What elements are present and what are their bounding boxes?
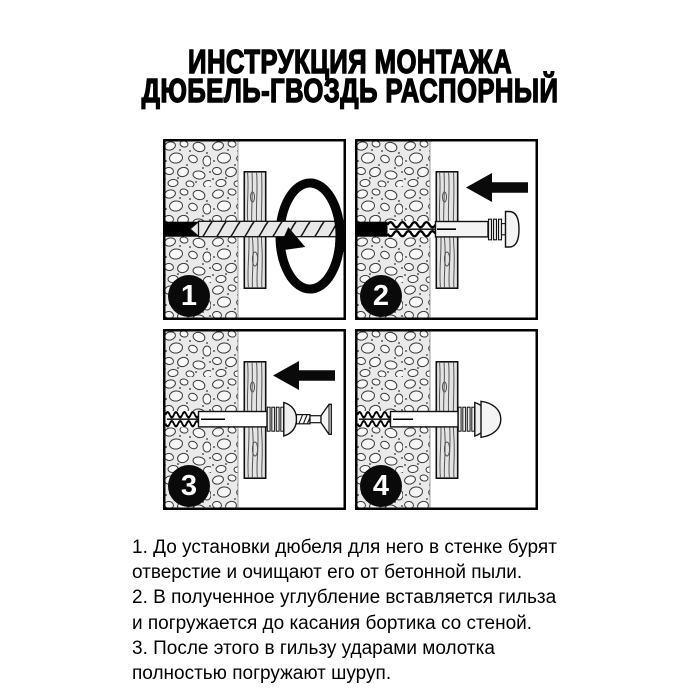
collar-rings: [489, 219, 502, 240]
step-number-badge: 2: [360, 275, 402, 317]
instruction-line: 2. В полученное углубление вставляется г…: [132, 585, 602, 610]
expansion-sleeve-ribs: [358, 411, 392, 427]
title-line-2: ДЮБЕЛЬ-ГВОЗДЬ РАСПОРНЫЙ: [77, 76, 623, 105]
instruction-line: и погружается до касания бортика со стен…: [132, 611, 602, 636]
expansion-sleeve-ribs: [388, 221, 436, 237]
page: { "title": { "line1": "ИНСТРУКЦИЯ МОНТАЖ…: [0, 0, 700, 700]
instruction-line: 3. После этого в гильзу ударами молотка: [132, 636, 602, 661]
step-panel-2: 2: [355, 139, 538, 320]
nail-head: [506, 212, 520, 248]
step-panel-4: 4: [355, 329, 538, 510]
step-panel-3: 3: [163, 329, 346, 510]
instruction-line: отверстие и очищают его от бетонной пыли…: [132, 560, 602, 585]
step-panel-1: 1: [163, 139, 346, 320]
page-title: ИНСТРУКЦИЯ МОНТАЖА ДЮБЕЛЬ-ГВОЗДЬ РАСПОРН…: [77, 47, 623, 105]
instruction-text: 1. До установки дюбеля для него в стенке…: [132, 535, 602, 686]
step-number-badge: 1: [168, 275, 210, 317]
drill-bit: [190, 221, 344, 236]
steps-grid: 1 2: [163, 139, 538, 510]
expansion-sleeve-ribs: [166, 411, 200, 427]
step-number-badge: 3: [168, 465, 210, 507]
instruction-line: полностью погружают шуруп.: [132, 661, 602, 686]
instruction-line: 1. До установки дюбеля для него в стенке…: [132, 535, 602, 560]
step-number-badge: 4: [360, 465, 402, 507]
